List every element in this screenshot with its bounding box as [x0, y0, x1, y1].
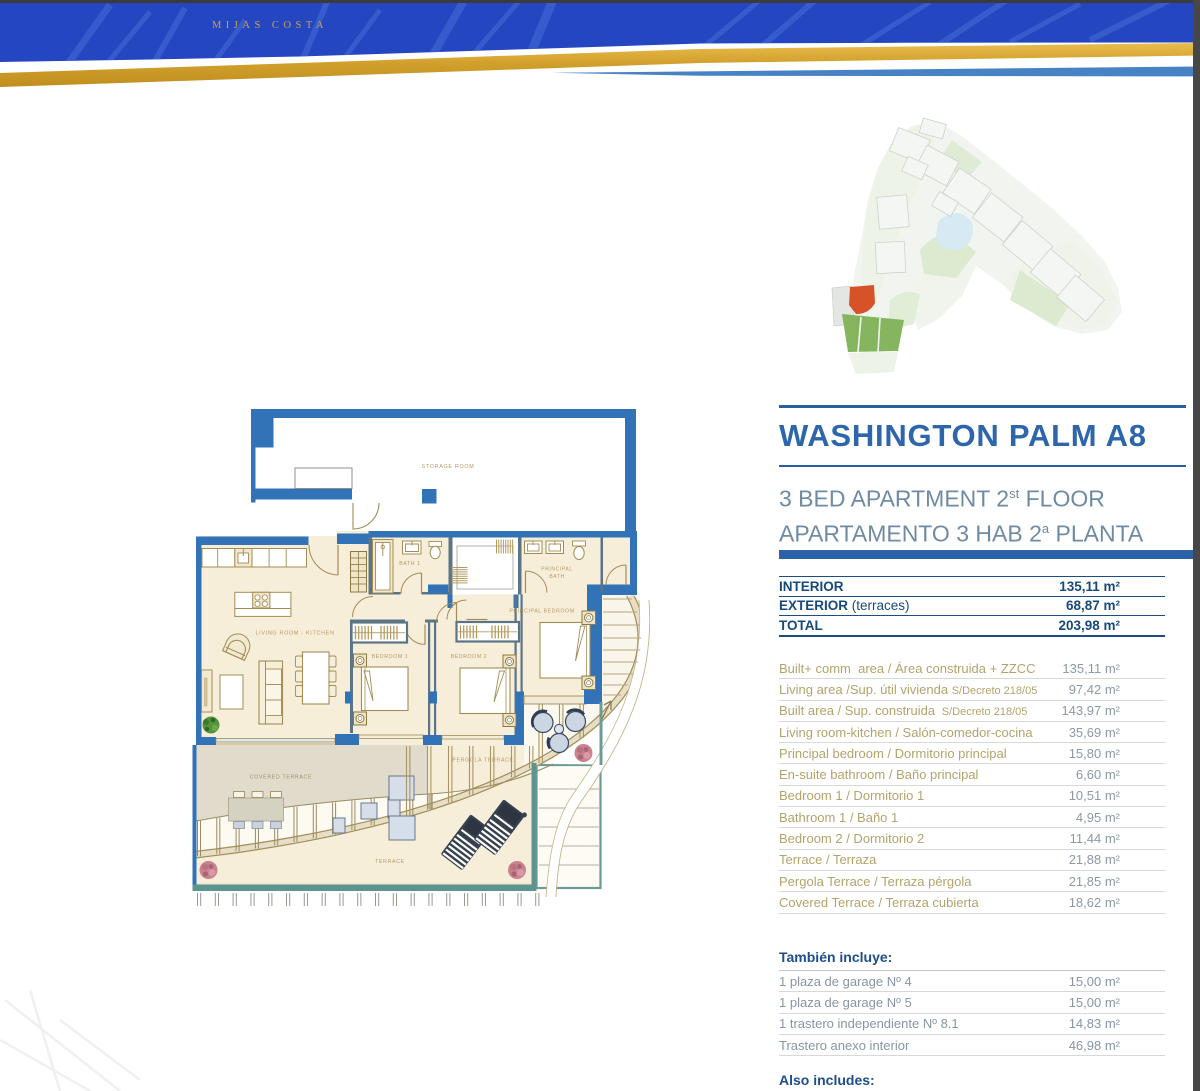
svg-text:PRINCIPAL: PRINCIPAL	[541, 567, 572, 573]
svg-text:STORAGE ROOM: STORAGE ROOM	[422, 464, 475, 470]
svg-text:LIVING ROOM - KITCHEN: LIVING ROOM - KITCHEN	[255, 631, 334, 637]
svg-text:BEDROOM 1: BEDROOM 1	[372, 654, 409, 660]
svg-text:COVERED TERRACE: COVERED TERRACE	[250, 775, 312, 781]
svg-text:BATH: BATH	[549, 574, 564, 580]
svg-text:PRINCIPAL BEDROOM: PRINCIPAL BEDROOM	[509, 609, 574, 615]
svg-text:PERGOLA TERRACE: PERGOLA TERRACE	[452, 758, 513, 764]
svg-text:MIJAS COSTA: MIJAS COSTA	[212, 20, 328, 31]
svg-text:BEDROOM 2: BEDROOM 2	[451, 654, 488, 660]
svg-text:BATH 1: BATH 1	[399, 561, 420, 567]
svg-text:TERRACE: TERRACE	[375, 859, 405, 865]
